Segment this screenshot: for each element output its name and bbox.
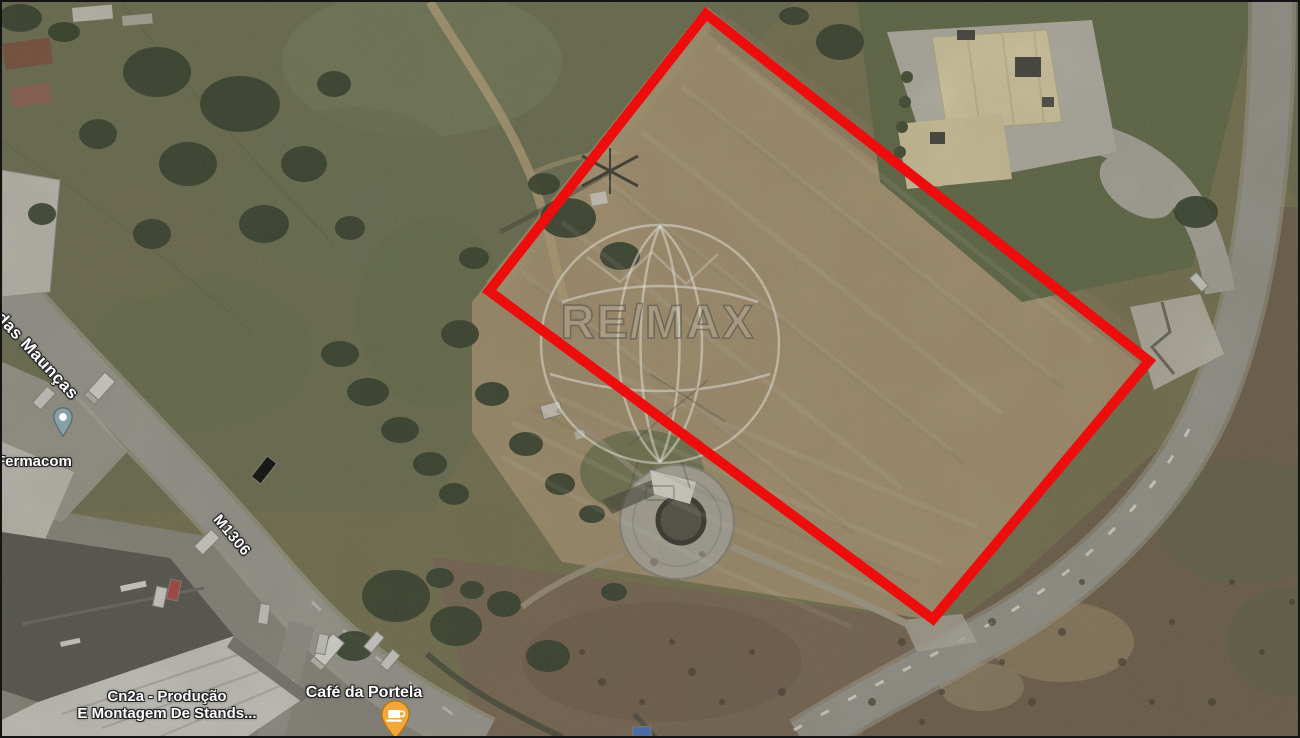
- place-label-cn2a-line2: E Montagem De Stands...: [37, 706, 297, 723]
- place-label-fermacom[interactable]: Fermacom: [0, 454, 72, 471]
- place-label-cn2a-line1: Cn2a - Produção: [37, 689, 297, 706]
- satellite-map[interactable]: RE/MAX das Maunças M1306 Fermacom Cn2a -…: [0, 0, 1300, 738]
- place-pin-icon[interactable]: [52, 406, 74, 439]
- place-label-cafe-da-portela[interactable]: Café da Portela: [284, 684, 444, 702]
- noise-overlay: [2, 2, 1300, 738]
- cafe-pin-icon[interactable]: [379, 700, 412, 738]
- place-label-cn2a[interactable]: Cn2a - Produção E Montagem De Stands...: [37, 689, 297, 723]
- satellite-canvas: RE/MAX: [2, 2, 1300, 738]
- watermark-text: RE/MAX: [561, 295, 756, 348]
